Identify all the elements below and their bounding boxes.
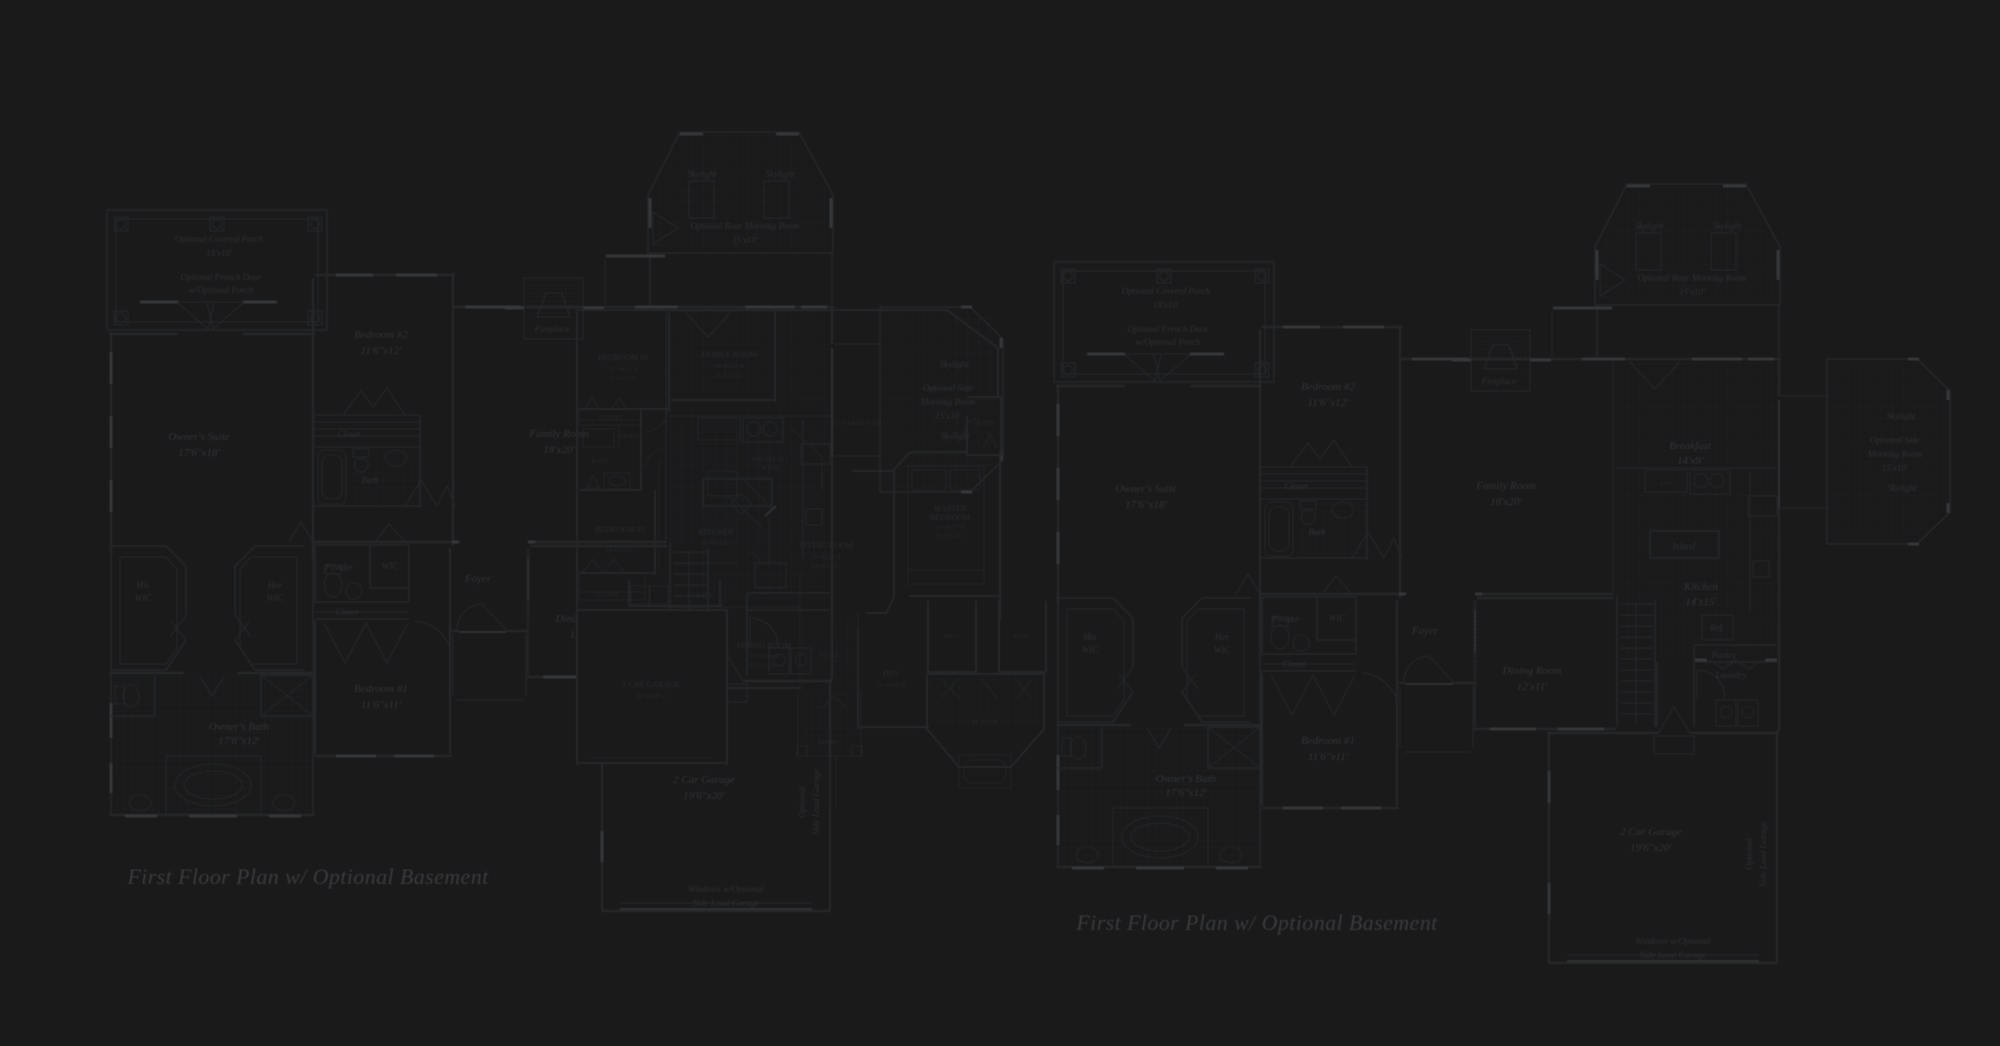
svg-text:FOYER: FOYER	[818, 652, 840, 659]
svg-text:COVERED PATIO: COVERED PATIO	[834, 420, 884, 427]
svg-text:DINING ROOM: DINING ROOM	[737, 641, 791, 650]
svg-text:Laundry: Laundry	[1715, 670, 1747, 680]
svg-text:11'-0 CLG.: 11'-0 CLG.	[714, 372, 743, 379]
svg-text:BEDROOM #2: BEDROOM #2	[595, 525, 645, 534]
svg-text:16'-0x21'-0: 16'-0x21'-0	[811, 554, 840, 561]
svg-text:11'-0x11'-0: 11'-0x11'-0	[606, 538, 635, 545]
svg-text:12'-0 CLG.: 12'-0 CLG.	[811, 563, 841, 570]
svg-text:12'-0x11'-0: 12'-0x11'-0	[608, 366, 637, 373]
svg-text:BATH: BATH	[977, 420, 994, 427]
svg-text:W.I.C.: W.I.C.	[944, 633, 961, 640]
svg-text:19'-0x21'-0: 19'-0x21'-0	[714, 363, 743, 370]
svg-text:Ref.: Ref.	[1709, 623, 1724, 633]
svg-text:Pantry: Pantry	[1711, 650, 1737, 660]
svg-text:M. BATH: M. BATH	[972, 719, 998, 726]
svg-text:First Floor Plan w/ Optional: First Floor Plan w/ Optional Basement	[126, 864, 489, 889]
svg-text:11'-0x14'-0: 11'-0x14'-0	[749, 653, 778, 660]
svg-text:11'-0 CLG.: 11'-0 CLG.	[608, 375, 637, 382]
svg-text:LINEN: LINEN	[619, 433, 639, 440]
svg-text:12'-0 CLG.: 12'-0 CLG.	[749, 662, 779, 669]
svg-text:First Floor Plan w/ Optional: First Floor Plan w/ Optional Basement	[1075, 910, 1438, 935]
svg-text:BEDROOM: BEDROOM	[930, 513, 970, 522]
svg-text:Island: Island	[1672, 541, 1696, 551]
svg-text:BREAKFAST: BREAKFAST	[751, 456, 788, 463]
svg-text:LIVING ROOM: LIVING ROOM	[799, 541, 853, 550]
svg-text:BEDROOM #3: BEDROOM #3	[598, 353, 648, 362]
svg-text:20'-0x20'-2: 20'-0x20'-2	[636, 693, 665, 700]
svg-text:MASTER: MASTER	[934, 504, 967, 513]
svg-text:11'-0x12'-0: 11'-0x12'-0	[876, 682, 905, 689]
svg-text:2 CAR GARAGE: 2 CAR GARAGE	[622, 680, 680, 689]
svg-text:CLOSET: CLOSET	[594, 591, 619, 598]
svg-text:14'x15': 14'x15'	[1685, 596, 1717, 608]
svg-text:DW: DW	[1661, 480, 1673, 487]
svg-text:14'x9': 14'x9'	[1677, 455, 1704, 467]
svg-text:11'-0 CLG.: 11'-0 CLG.	[605, 547, 634, 554]
svg-text:W.I.C.: W.I.C.	[1014, 633, 1031, 640]
svg-text:CLOSET: CLOSET	[599, 414, 624, 421]
svg-text:Breakfast: Breakfast	[1669, 440, 1712, 452]
svg-text:11'-0 CLG.: 11'-0 CLG.	[701, 540, 730, 547]
svg-text:NOOK: NOOK	[761, 465, 780, 472]
svg-text:KITCHEN: KITCHEN	[698, 528, 733, 537]
svg-text:11'-0 CLG.: 11'-0 CLG.	[935, 532, 964, 539]
svg-text:13'-0x17'-0: 13'-0x17'-0	[935, 524, 964, 531]
svg-text:FAMILY ROOM: FAMILY ROOM	[702, 350, 757, 359]
svg-text:BATH: BATH	[592, 458, 609, 465]
svg-text:ENTRY: ENTRY	[818, 739, 840, 746]
svg-text:DEN: DEN	[883, 669, 900, 678]
svg-text:Kitchen: Kitchen	[1683, 581, 1719, 593]
